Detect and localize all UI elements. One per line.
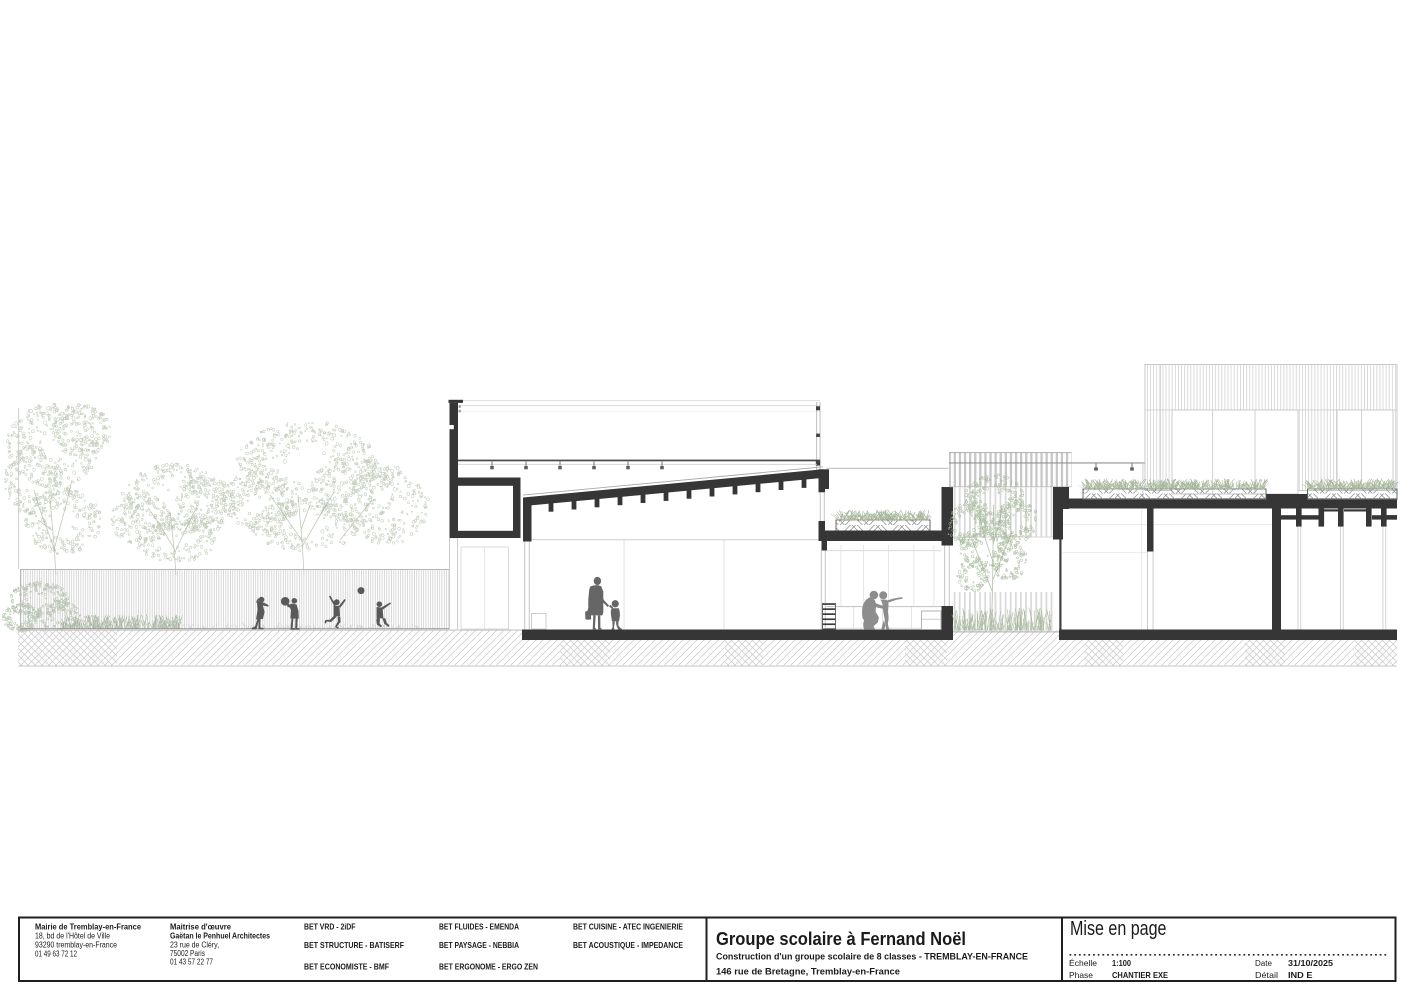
- svg-text:BET ACOUSTIQUE - IMPEDANCE: BET ACOUSTIQUE - IMPEDANCE: [573, 941, 683, 950]
- svg-text:1:100: 1:100: [1112, 958, 1131, 968]
- svg-text:BET FLUIDES - EMENDA: BET FLUIDES - EMENDA: [439, 923, 519, 932]
- svg-text:Mairie de Tremblay-en-France: Mairie de Tremblay-en-France: [35, 922, 141, 932]
- svg-text:BET PAYSAGE - NEBBIA: BET PAYSAGE - NEBBIA: [439, 941, 519, 950]
- svg-text:Détail: Détail: [1255, 970, 1278, 980]
- svg-text:Construction d'un groupe scola: Construction d'un groupe scolaire de 8 c…: [716, 952, 1028, 962]
- svg-text:Échelle: Échelle: [1069, 958, 1097, 968]
- svg-text:Mise en page: Mise en page: [1070, 918, 1167, 940]
- svg-text:18, bd de l'Hôtel de Ville: 18, bd de l'Hôtel de Ville: [35, 932, 110, 941]
- svg-text:Phase: Phase: [1069, 970, 1093, 980]
- svg-text:Groupe scolaire à Fernand Noël: Groupe scolaire à Fernand Noël: [716, 928, 966, 949]
- svg-text:Gaëtan le Penhuel Architectes: Gaëtan le Penhuel Architectes: [170, 932, 270, 941]
- svg-text:Maitrise d'œuvre: Maitrise d'œuvre: [170, 922, 231, 932]
- svg-text:31/10/2025: 31/10/2025: [1288, 958, 1333, 968]
- svg-text:146 rue de Bretagne, Tremblay-: 146 rue de Bretagne, Tremblay-en-France: [716, 967, 900, 978]
- svg-text:BET STRUCTURE - BATISERF: BET STRUCTURE - BATISERF: [304, 941, 404, 950]
- svg-text:BET ERGONOME - ERGO ZEN: BET ERGONOME - ERGO ZEN: [439, 963, 538, 972]
- svg-text:BET CUISINE - ATEC INGENIERIE: BET CUISINE - ATEC INGENIERIE: [573, 923, 683, 932]
- svg-text:93290 tremblay-en-France: 93290 tremblay-en-France: [35, 941, 117, 950]
- svg-text:Date: Date: [1255, 958, 1272, 968]
- svg-text:BET VRD - 2iDF: BET VRD - 2iDF: [304, 923, 356, 932]
- svg-text:IND E: IND E: [1288, 970, 1313, 980]
- svg-text:CHANTIER EXE: CHANTIER EXE: [1112, 970, 1168, 980]
- svg-text:BET ECONOMISTE - BMF: BET ECONOMISTE - BMF: [304, 963, 389, 972]
- svg-text:01 49 63 72 12: 01 49 63 72 12: [35, 950, 77, 959]
- svg-text:01 43 57 22 77: 01 43 57 22 77: [170, 958, 213, 967]
